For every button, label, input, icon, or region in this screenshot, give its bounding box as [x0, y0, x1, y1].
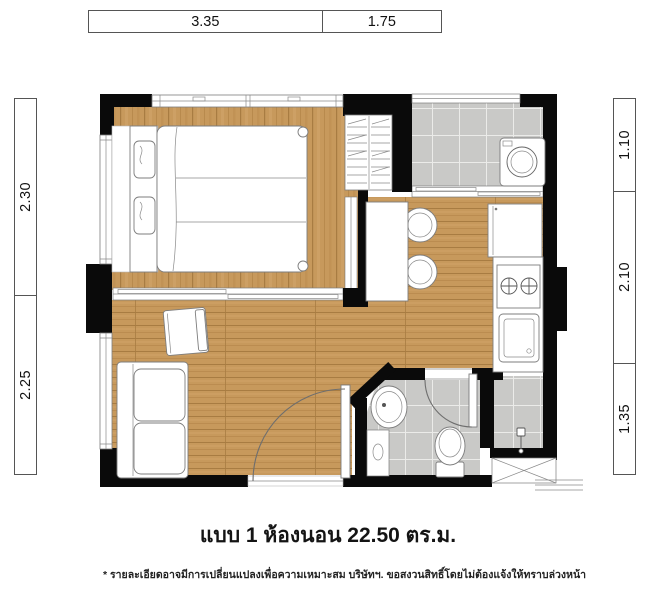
balcony-sliding-door — [412, 186, 543, 197]
bedroom-sliding-door — [113, 288, 343, 300]
plan-title: แบบ 1 ห้องนอน 22.50 ตร.ม. — [0, 519, 656, 552]
pillow — [134, 197, 155, 234]
entrance-door-leaf — [341, 385, 350, 478]
entrance-threshold — [248, 476, 343, 486]
bathroom-door-leaf — [469, 374, 477, 427]
kitchen-pocket-door — [345, 197, 357, 289]
sofa — [117, 362, 188, 478]
plan-footnote: * รายละเอียดอาจมีการเปลี่ยนแปลงเพื่อความ… — [103, 566, 586, 583]
floor-plan-drawing — [0, 0, 656, 599]
wardrobe — [345, 115, 392, 190]
bed — [112, 126, 308, 272]
sofa-cushion — [134, 423, 185, 474]
stove — [497, 265, 540, 308]
refrigerator — [488, 204, 542, 257]
bathroom-door-opening — [425, 368, 472, 380]
living-window-left — [100, 333, 112, 449]
armchair — [163, 307, 209, 355]
kitchen-sink — [499, 314, 539, 362]
wall-pier-left — [86, 264, 112, 333]
washing-machine — [500, 138, 545, 186]
toilet — [435, 427, 465, 477]
bedroom-window-left — [100, 135, 112, 264]
bed-mattress — [157, 126, 307, 272]
wash-basin — [371, 386, 407, 428]
shower-floor — [494, 376, 543, 448]
floor-plan-page: 3.35 1.75 2.30 2.25 1.10 2.10 1.35 — [0, 0, 656, 599]
pillow — [134, 141, 155, 178]
kitchen — [488, 204, 543, 372]
bedroom-window-top — [152, 95, 343, 107]
service-shaft — [492, 458, 583, 490]
sofa-cushion — [134, 369, 185, 421]
dining-table — [366, 202, 408, 301]
balcony-rail-edge — [412, 94, 520, 103]
bathroom-cabinet — [367, 430, 389, 476]
